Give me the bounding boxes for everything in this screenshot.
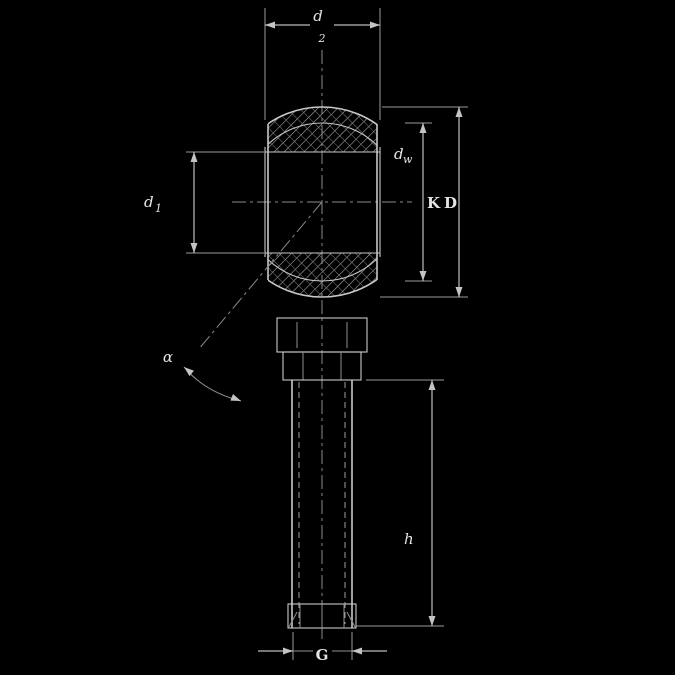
dim-arrow [456, 287, 463, 297]
thread-end [288, 604, 356, 628]
dim-label-d2-sub: 2 [318, 32, 326, 45]
arc-arrowhead-upper [184, 367, 194, 376]
dim-arrow [283, 648, 293, 655]
dim-arrow [191, 243, 198, 253]
dim-arrow [420, 271, 427, 281]
annotation-dw: d w [394, 145, 413, 166]
drawing-canvas: d 2 d 1 K D d w α [0, 0, 675, 675]
arc-arrowhead-lower [230, 394, 241, 401]
dim-arrow [370, 22, 380, 29]
dim-arrow [352, 648, 362, 655]
dim-arrow [420, 123, 427, 133]
dim-label-alpha: α [163, 348, 173, 366]
dim-label-d2-base: d [313, 7, 323, 25]
dim-label-D: D [444, 194, 457, 212]
dim-label-K: K [427, 194, 441, 212]
dim-label-G: G [316, 646, 329, 664]
misalignment-indicator [184, 202, 322, 401]
dim-label-h: h [404, 530, 414, 548]
dim-label-d1-base: d [144, 193, 154, 211]
dim-arrow [456, 107, 463, 117]
dim-arrow [429, 380, 436, 390]
dim-label-d1-sub: 1 [155, 202, 162, 215]
rod-end-technical-drawing: d 2 d 1 K D d w α [0, 0, 675, 675]
dim-label-dw-sub: w [403, 153, 413, 166]
dim-arrow [265, 22, 275, 29]
dimension-h: h [356, 380, 444, 626]
dim-arrow [191, 152, 198, 162]
dim-arrow [429, 616, 436, 626]
